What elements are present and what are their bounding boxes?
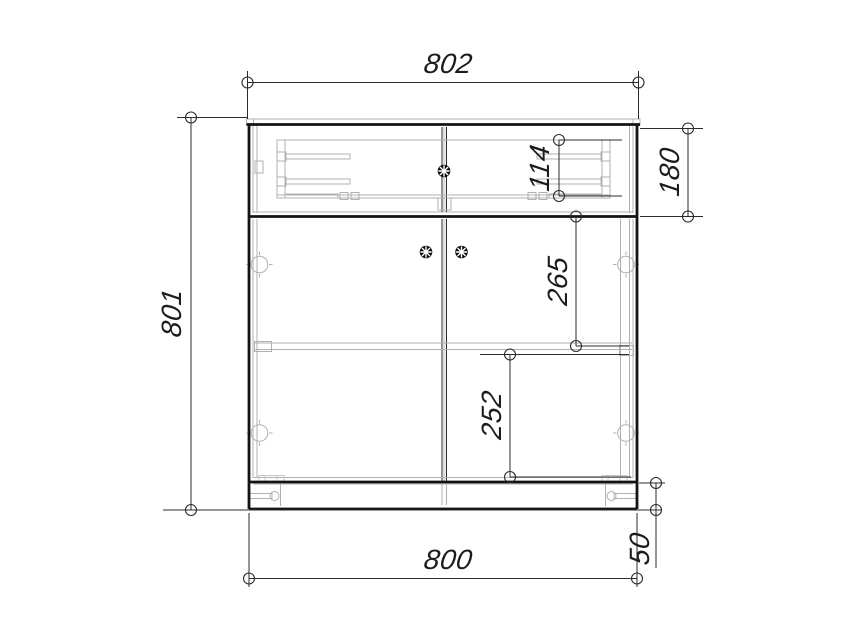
- dimension-top-width: 802: [242, 48, 644, 119]
- knob-icon: [420, 246, 433, 259]
- dimension-overall-height: 801: [156, 112, 661, 516]
- dim-label-lower-compartment: 252: [476, 388, 507, 442]
- dim-label-top-width: 802: [422, 48, 475, 79]
- hinge-icon: [613, 252, 639, 278]
- knob-icon: [438, 165, 451, 178]
- cad-canvas: 802 801 800 50 180 114: [0, 0, 856, 642]
- dimension-drawer-section: 180: [640, 123, 703, 222]
- dim-label-plinth-height: 50: [624, 530, 655, 566]
- dim-label-overall-height: 801: [156, 286, 187, 339]
- knob-icon: [455, 246, 468, 259]
- dim-label-drawer-box: 114: [524, 142, 555, 192]
- plinth-details: [250, 476, 636, 507]
- dimension-bottom-width: 800: [244, 513, 643, 587]
- dimension-drawer-box: 114: [524, 135, 622, 202]
- dimension-plinth-height: 50: [624, 478, 665, 569]
- technical-drawing: 802 801 800 50 180 114: [0, 0, 856, 642]
- door-section-internals: [247, 198, 640, 481]
- dim-label-bottom-width: 800: [422, 544, 475, 575]
- hinge-icon: [613, 420, 639, 446]
- dimension-lower-compartment: 252: [476, 349, 631, 483]
- dim-label-upper-compartment: 265: [542, 254, 573, 308]
- dimension-upper-compartment: 265: [542, 211, 629, 352]
- dim-label-drawer-section: 180: [654, 145, 685, 198]
